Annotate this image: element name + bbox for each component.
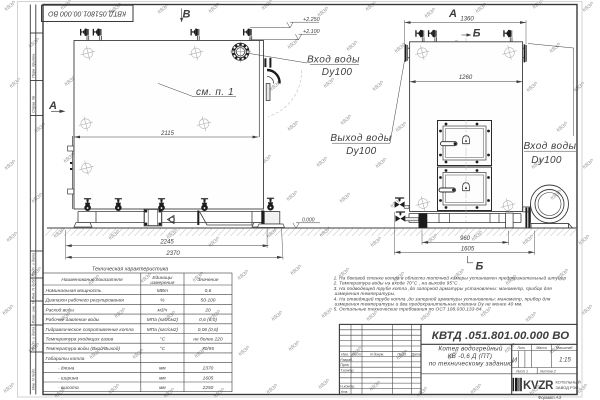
svg-text:м3/ч: м3/ч [158, 307, 168, 313]
svg-text:1605: 1605 [203, 375, 214, 381]
svg-text:Наименование показателя: Наименование показателя [61, 277, 123, 283]
svg-text:КВ -0,6 Д (ПТ): КВ -0,6 Д (ПТ) [448, 353, 493, 360]
svg-text:КВТД .051.801.00.000 ВО: КВТД .051.801.00.000 ВО [432, 330, 570, 342]
svg-text:Т.контр.: Т.контр. [340, 369, 354, 373]
svg-text:Подп. и дата: Подп. и дата [32, 327, 36, 351]
svg-text:Dy100: Dy100 [322, 67, 353, 78]
svg-text:- высота: - высота [58, 386, 79, 391]
svg-text:МПа (кгс/см2): МПа (кгс/см2) [147, 327, 179, 333]
svg-text:МВт: МВт [157, 288, 168, 294]
svg-text:2115: 2115 [160, 131, 175, 137]
svg-text:Подп.: Подп. [397, 353, 406, 357]
svg-text:Рабочее давление воды: Рабочее давление воды [46, 317, 100, 323]
svg-text:Разраб.: Разраб. [340, 358, 353, 362]
svg-text:Инв. N дубл.: Инв. N дубл. [32, 278, 36, 300]
svg-text:- длина: - длина [58, 366, 75, 372]
svg-text:не более 220: не более 220 [193, 337, 223, 343]
svg-text:+2.250: +2.250 [303, 17, 320, 23]
svg-text:Техническая характеристика: Техническая характеристика [92, 267, 168, 273]
svg-text:Температура воды (Вход/Выход: Температура воды (Вход/Выход) [46, 346, 121, 352]
svg-text:Вход воды: Вход воды [523, 141, 576, 152]
svg-text:Вход воды: Вход воды [307, 55, 360, 66]
svg-text:4. На отводящей трубе котл: 4. На отводящей трубе котла ,до запорной… [334, 295, 551, 301]
svg-text:Лит.: Лит. [516, 346, 525, 350]
svg-text:+2.100: +2.100 [303, 29, 320, 35]
svg-text:измерения: измерения [150, 281, 174, 286]
svg-text:Н.контр.: Н.контр. [340, 385, 355, 389]
svg-text:2370: 2370 [202, 366, 214, 372]
svg-text:°С: °С [160, 337, 166, 343]
svg-text:70/95: 70/95 [202, 346, 214, 352]
svg-text:КОТЕЛЬНЫЙ: КОТЕЛЬНЫЙ [556, 379, 581, 384]
svg-text:Масса: Масса [536, 346, 546, 350]
svg-text:Взам. инв. N: Взам. инв. N [32, 301, 36, 323]
svg-text:Выход воды: Выход воды [330, 133, 391, 144]
svg-text:Габариты котла: Габариты котла [46, 356, 85, 362]
svg-text:В: В [183, 9, 191, 21]
svg-text:50-100: 50-100 [201, 298, 216, 304]
svg-text:Гидравлическое сопротивление: Гидравлическое сопротивление котла [46, 327, 134, 333]
svg-text:мм: мм [159, 386, 166, 391]
svg-text:МПа (кгс/см2): МПа (кгс/см2) [147, 317, 179, 323]
svg-text:1. На боковой стенке котла: 1. На боковой стенке котла в области топ… [334, 275, 567, 281]
svg-text:3. На подводящей трубе кот: 3. На подводящей трубе котла ,до запорно… [334, 285, 553, 291]
svg-text:1:15: 1:15 [559, 358, 571, 364]
svg-text:KVZR: KVZR [523, 380, 554, 392]
svg-text:1260: 1260 [459, 75, 473, 81]
svg-text:см. п. 1: см. п. 1 [196, 87, 234, 98]
svg-text:N докум.: N докум. [370, 353, 384, 357]
svg-text:0,6: 0,6 [205, 288, 212, 294]
svg-text:А: А [448, 8, 457, 20]
svg-text:960: 960 [460, 236, 471, 242]
svg-text:0,6 (6,0): 0,6 (6,0) [199, 317, 217, 323]
svg-text:мм: мм [159, 376, 166, 381]
svg-text:2250: 2250 [202, 385, 214, 391]
svg-text:Dy100: Dy100 [346, 146, 377, 157]
svg-text:Лист: Лист [351, 353, 361, 357]
svg-text:Масштаб: Масштаб [556, 346, 573, 350]
svg-text:Пров.: Пров. [340, 363, 349, 367]
svg-text:0.000: 0.000 [302, 217, 315, 223]
svg-text:- ширина: - ширина [58, 376, 79, 381]
svg-text:Справ. №: Справ. № [32, 96, 36, 113]
svg-text:%: % [160, 298, 165, 304]
svg-text:Расход воды: Расход воды [46, 307, 75, 313]
svg-text:Номинальная мощность: Номинальная мощность [46, 288, 103, 294]
svg-text:2245: 2245 [159, 240, 174, 246]
svg-text:Котел водогрейный: Котел водогрейный [438, 345, 502, 353]
svg-text:Инв. N подл.: Инв. N подл. [32, 368, 36, 390]
svg-text:Б: Б [473, 28, 481, 40]
svg-text:0,06 (0,6): 0,06 (0,6) [198, 327, 219, 333]
svg-text:5. Остальные технические тр: 5. Остальные технические требования по О… [334, 307, 483, 312]
svg-text:А: А [48, 100, 57, 112]
svg-text:Дата: Дата [411, 353, 421, 357]
svg-text:Перв. примен.: Перв. примен. [32, 53, 36, 78]
svg-text:Dy100: Dy100 [531, 155, 562, 166]
svg-text:Подп. и дата: Подп. и дата [32, 253, 36, 277]
svg-text:по техническому заданию: по техническому заданию [429, 360, 513, 368]
svg-text:1360: 1360 [460, 17, 474, 23]
svg-text:Утв.: Утв. [340, 390, 348, 394]
svg-text:20: 20 [204, 307, 211, 313]
svg-text:2370: 2370 [165, 251, 180, 257]
svg-text:Изм.: Изм. [341, 353, 348, 357]
svg-text:Б: Б [476, 261, 484, 273]
svg-text:Листов 2: Листов 2 [539, 369, 556, 373]
svg-text:КВТД.051801.00.000 ВО: КВТД.051801.00.000 ВО [48, 10, 126, 17]
svg-text:°С: °С [160, 346, 166, 352]
svg-text:Значение: Значение [197, 277, 218, 283]
svg-text:ЗАВОД РЭП: ЗАВОД РЭП [556, 385, 579, 390]
svg-text:мм: мм [159, 367, 166, 372]
svg-text:Диапазон рабочего регулирова: Диапазон рабочего регулирования [45, 298, 125, 304]
svg-text:1605: 1605 [461, 246, 475, 252]
svg-text:Температура уходящих газов: Температура уходящих газов [46, 337, 114, 343]
svg-text:Лист 1: Лист 1 [515, 369, 528, 373]
svg-text:Формат А3: Формат А3 [538, 395, 562, 400]
